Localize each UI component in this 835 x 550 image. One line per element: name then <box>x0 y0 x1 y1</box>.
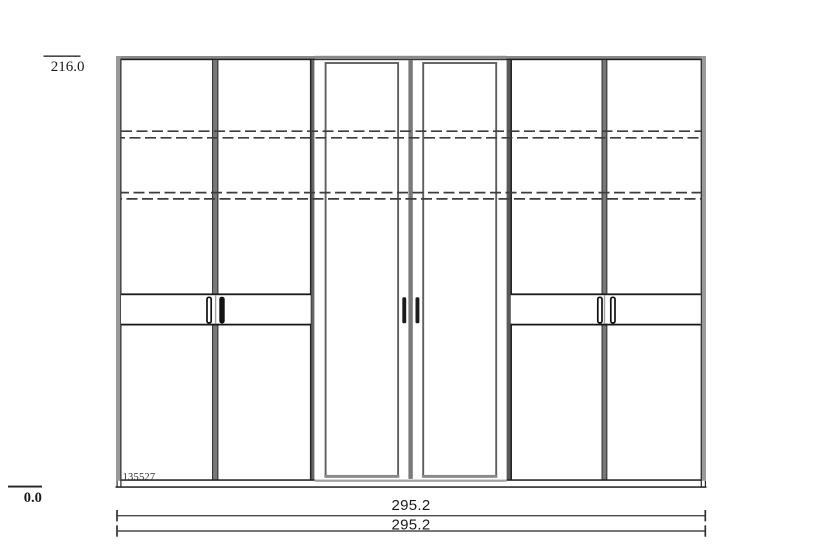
svg-text:295.2: 295.2 <box>391 497 430 514</box>
svg-text:135527: 135527 <box>123 472 156 483</box>
svg-text:216.0: 216.0 <box>51 59 85 75</box>
svg-text:0.0: 0.0 <box>24 490 42 506</box>
